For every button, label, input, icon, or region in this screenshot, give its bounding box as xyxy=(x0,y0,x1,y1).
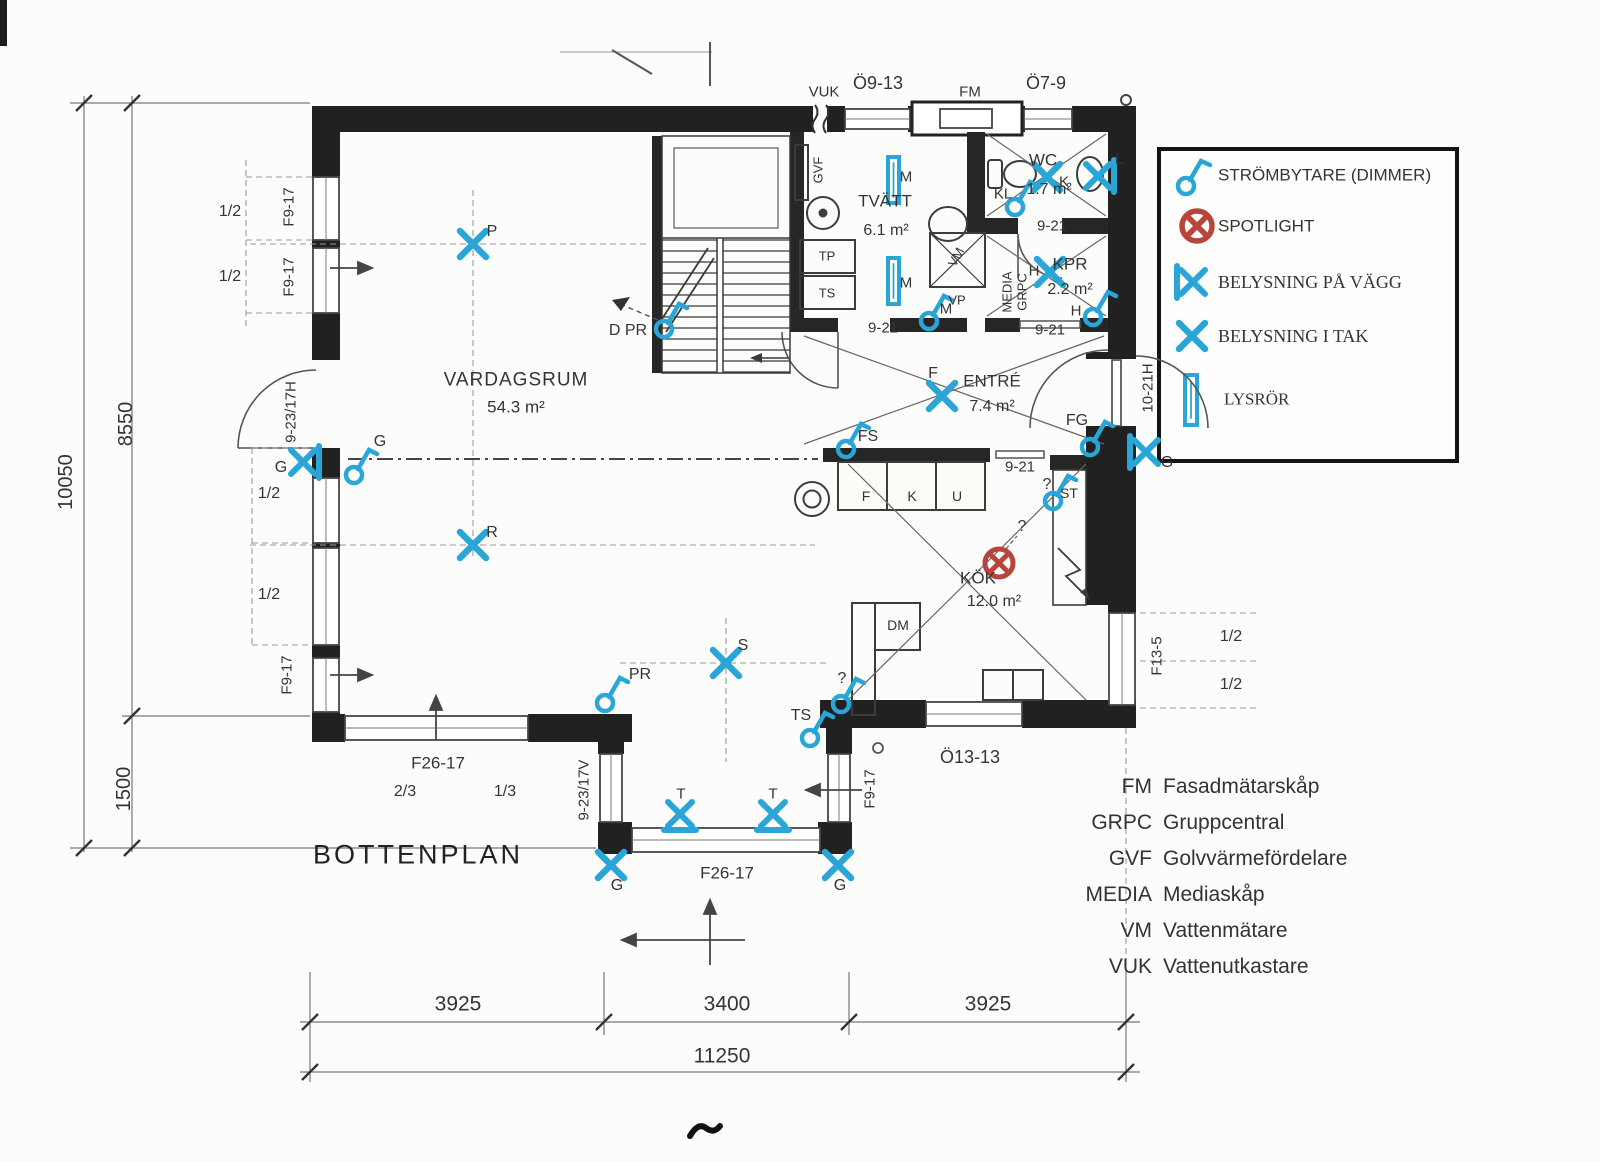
label-f917-left3: F9-17 xyxy=(280,655,295,694)
switch-label-FG: FG xyxy=(1066,413,1088,429)
abbr-key: MEDIA xyxy=(1022,883,1152,907)
light-label-K: K xyxy=(1059,175,1069,190)
label-d923-17v: 9-23/17V xyxy=(577,760,592,821)
abbr-meaning: Golvvärmefördelare xyxy=(1163,847,1347,871)
dim-half-right2: 1/2 xyxy=(1220,677,1242,693)
switch-label-FS: FS xyxy=(858,429,878,445)
legend-wall-light-icon xyxy=(1177,266,1205,298)
room-name-wc: WC xyxy=(1029,152,1057,169)
wall-light-T1 xyxy=(664,802,696,830)
legend-label-spotlight: SPOTLIGHT xyxy=(1218,218,1314,235)
label-f917-left2: F9-17 xyxy=(282,257,297,296)
fixture-label-vp: VP xyxy=(948,294,965,307)
light-label-G-porch2: G xyxy=(834,878,846,894)
room-name-entre: ENTRÉ xyxy=(963,373,1021,390)
fixture-label-ts: TS xyxy=(819,287,836,300)
room-area-kok: 12.0 m² xyxy=(967,594,1021,610)
dim-one-third: 1/3 xyxy=(494,784,516,800)
vuk-wall-break xyxy=(813,105,829,133)
facade-meter-cabinet xyxy=(912,102,1022,135)
drain-circle xyxy=(873,743,883,753)
light-label-L: L xyxy=(1115,152,1123,167)
label-921-wc: 9-21 xyxy=(1037,219,1067,234)
abbr-meaning: Gruppcentral xyxy=(1163,811,1284,835)
legend-label-lysror: LYSRÖR xyxy=(1224,391,1289,408)
switch-label-question-ts: ? xyxy=(838,671,847,687)
fixture-label-grpc: GRPC xyxy=(1016,273,1029,311)
light-label-R: R xyxy=(486,525,498,541)
floor-plan-page: STRÖMBYTARE (DIMMER) SPOTLIGHT BELYSNING… xyxy=(0,0,1600,1162)
room-name-kpr: KPR xyxy=(1053,256,1088,273)
legend-label-wall-light: BELYSNING PÅ VÄGG xyxy=(1218,273,1402,291)
label-f2617-porch: F26-17 xyxy=(700,865,754,882)
label-fm: FM xyxy=(959,85,981,100)
light-label-G-porch1: G xyxy=(611,878,623,894)
light-label-F: F xyxy=(928,366,938,382)
label-o79: Ö7-9 xyxy=(1026,74,1066,92)
abbr-key: VM xyxy=(1022,919,1152,943)
dim-8550: 8550 xyxy=(116,402,136,447)
dim-3925-right: 3925 xyxy=(965,994,1012,1015)
label-921-entre: 9-21 xyxy=(1005,460,1035,475)
ceiling-light-G-porch-right xyxy=(825,852,851,878)
stairs-up-arrowhead xyxy=(612,297,630,311)
room-area-kpr: 2.2 m² xyxy=(1047,282,1092,298)
cabinet-label-f: F xyxy=(862,489,871,503)
room-area-entre: 7.4 m² xyxy=(969,399,1014,415)
room-name-vardagsrum: VARDAGSRUM xyxy=(444,371,589,390)
switch-label-question-st: ? xyxy=(1043,477,1052,493)
wall-light-T2 xyxy=(757,802,789,830)
dim-half-left2: 1/2 xyxy=(219,269,241,285)
corner-marker-circle xyxy=(1121,95,1131,105)
switch-label-question-spot: ? xyxy=(1018,519,1027,535)
label-o1313: Ö13-13 xyxy=(940,748,1000,766)
switch-label-PR: PR xyxy=(629,667,651,683)
abbr-meaning: Vattenutkastare xyxy=(1163,955,1309,979)
switch-label-TS: TS xyxy=(791,708,811,724)
label-o913: Ö9-13 xyxy=(853,74,903,92)
fixture-label-tp: TP xyxy=(819,250,836,263)
label-f917-porch: F9-17 xyxy=(863,769,878,808)
abbr-meaning: Mediaskåp xyxy=(1163,883,1265,907)
abbr-meaning: Fasadmätarskåp xyxy=(1163,775,1319,799)
fixture-label-dm: DM xyxy=(887,618,909,632)
room-area-vardagsrum: 54.3 m² xyxy=(487,399,545,416)
abbr-meaning: Vattenmätare xyxy=(1163,919,1288,943)
fixture-label-gvf: GVF xyxy=(812,157,825,184)
label-921-tvatt: 9-21 xyxy=(868,321,898,336)
switch-label-H: H xyxy=(1071,304,1082,319)
room-name-tvatt: TVÄTT xyxy=(858,193,912,210)
fixture-label-media: MEDIA xyxy=(1001,271,1014,312)
light-label-G-left: G xyxy=(275,460,287,476)
light-label-M1: M xyxy=(900,170,913,185)
legend-label-ceiling-light: BELYSNING I TAK xyxy=(1218,327,1368,345)
switch-label-D-PR: D PR xyxy=(609,323,647,339)
label-f917-left1: F9-17 xyxy=(282,187,297,226)
dim-half-left1: 1/2 xyxy=(219,204,241,220)
dim-half-left4: 1/2 xyxy=(258,587,280,603)
label-d1021h: 10-21H xyxy=(1141,363,1156,412)
switch-PR xyxy=(597,678,628,711)
light-label-P: P xyxy=(487,224,498,240)
dim-3400: 3400 xyxy=(704,994,751,1015)
dim-half-left3: 1/2 xyxy=(258,486,280,502)
dim-10050: 10050 xyxy=(56,454,76,510)
legend-dimmer-switch-icon xyxy=(1178,161,1210,194)
dim-half-right1: 1/2 xyxy=(1220,629,1242,645)
abbr-key: FM xyxy=(1022,775,1152,799)
room-name-kok: KÖK xyxy=(960,570,996,587)
label-vuk: VUK xyxy=(809,85,840,100)
switch-label-G: G xyxy=(374,434,386,450)
ceiling-light-G-porch-left xyxy=(598,852,624,878)
legend-label-dimmer: STRÖMBYTARE (DIMMER) xyxy=(1218,167,1431,184)
cabinet-label-k: K xyxy=(907,489,916,503)
label-f2617-left: F26-17 xyxy=(411,755,465,772)
dim-1500: 1500 xyxy=(114,767,134,812)
dim-3925-left: 3925 xyxy=(435,994,482,1015)
light-label-M2: M xyxy=(900,276,913,291)
switch-G xyxy=(346,450,377,483)
page-title: BOTTENPLAN xyxy=(313,842,523,869)
fluorescent-tube-M2 xyxy=(888,258,899,304)
light-label-T1: T xyxy=(676,787,685,802)
switch-label-KL: KL xyxy=(994,187,1012,202)
light-label-S: S xyxy=(738,638,749,654)
ceiling-light-F xyxy=(929,383,955,409)
top-reference-mark xyxy=(560,42,712,86)
label-921-kpr: 9-21 xyxy=(1035,323,1065,338)
legend-ceiling-light-icon xyxy=(1179,323,1205,349)
abbr-key: GVF xyxy=(1022,847,1152,871)
abbr-key: VUK xyxy=(1022,955,1152,979)
dim-11250: 11250 xyxy=(694,1046,751,1067)
bottom-squiggle xyxy=(690,1126,720,1136)
cabinet-label-u: U xyxy=(952,489,962,503)
label-d923-17h: 9-23/17H xyxy=(284,381,299,443)
abbr-key: GRPC xyxy=(1022,811,1152,835)
room-area-tvatt: 6.1 m² xyxy=(863,223,908,239)
light-label-G-right: G xyxy=(1161,455,1173,471)
fixture-label-st: ST xyxy=(1060,486,1078,500)
label-f135: F13-5 xyxy=(1150,636,1165,675)
scan-artifact xyxy=(0,0,7,46)
front-door-leaf xyxy=(1112,360,1121,426)
dim-two-thirds: 2/3 xyxy=(394,784,416,800)
legend-spotlight-icon xyxy=(1182,211,1212,241)
light-label-H: H xyxy=(1029,264,1040,279)
light-label-T2: T xyxy=(768,787,777,802)
staircase xyxy=(660,136,790,373)
